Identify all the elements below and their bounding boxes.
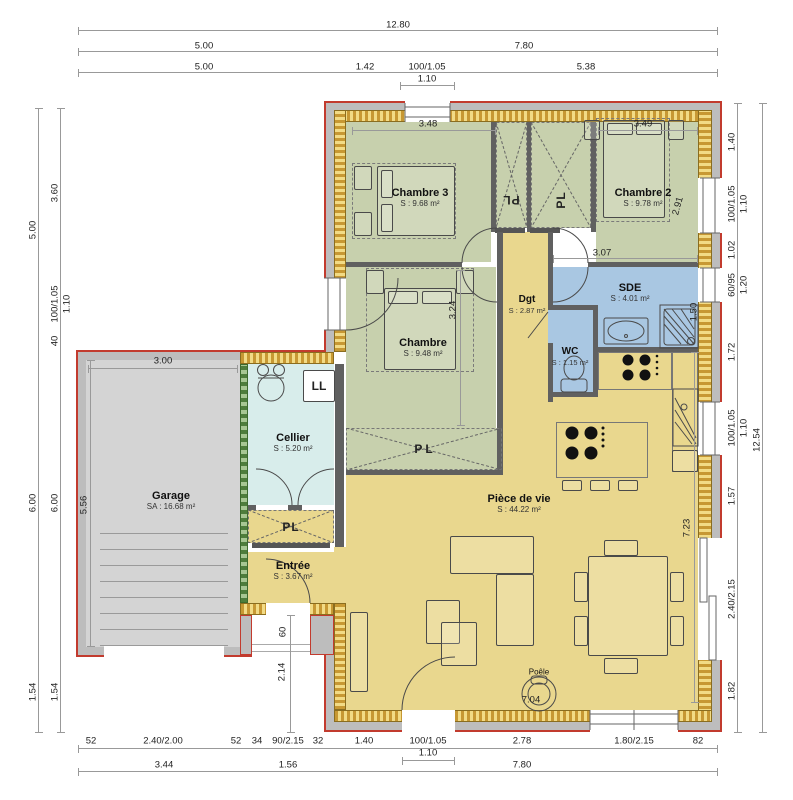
dimension-label: 34	[252, 736, 263, 747]
dimension-label: 6.00	[50, 494, 61, 513]
wall-dgt-east-upper	[548, 232, 553, 310]
garage-door-panels	[100, 533, 228, 647]
closet-pl-right-floor	[531, 122, 591, 228]
kitchen-counter-top	[598, 352, 672, 390]
chair	[604, 540, 638, 556]
dimension-label: 3.48	[419, 119, 438, 130]
dimension-label: 3.00	[154, 356, 173, 367]
nightstand	[456, 270, 474, 294]
dimension-label: 100/1.05	[409, 62, 446, 73]
dimension-label: 100/1.05	[50, 286, 61, 323]
dim-line	[694, 352, 695, 703]
insulation-wall-garage	[240, 364, 248, 603]
coffee-table-2	[441, 622, 477, 666]
wall-cellier-east	[335, 364, 344, 547]
wall-cellier-south-b	[288, 505, 302, 510]
wall-dgt-west	[497, 232, 503, 475]
stool	[590, 480, 610, 491]
dimension-label: 5.00	[195, 41, 214, 52]
chair	[574, 616, 588, 646]
bay-window-living	[698, 538, 730, 660]
dim-line	[352, 130, 496, 131]
dimension-label: 3.49	[634, 119, 653, 130]
dimension-label: 3.24	[448, 301, 459, 320]
label-poele: Poêle	[529, 668, 549, 677]
dimension-label: 1.50	[689, 303, 700, 322]
dim-line	[598, 130, 698, 131]
nightstand	[354, 212, 372, 236]
front-door-opening	[266, 603, 310, 615]
dimension-label: 3.07	[593, 248, 612, 259]
porch-pad-right	[310, 615, 334, 655]
dimension-label: 100/1.05	[727, 410, 738, 447]
label-pl-chambre: PL	[414, 442, 435, 456]
dimension-label: 3.60	[50, 184, 61, 203]
dim-line	[400, 85, 455, 86]
window-living-south	[590, 710, 678, 732]
dim-line	[90, 360, 91, 647]
dimension-label: 5.00	[28, 221, 39, 240]
dimension-label: 2.78	[513, 736, 532, 747]
label-ll: LL	[312, 379, 327, 393]
dimension-label: 5.00	[195, 62, 214, 73]
sofa-seat-top	[450, 536, 534, 574]
dining-table	[588, 556, 668, 656]
dimension-label: 32	[313, 736, 324, 747]
dimension-label: 52	[86, 736, 97, 747]
dimension-label: 52	[231, 736, 242, 747]
wall-pl-chambre-south	[346, 470, 502, 475]
dim-line	[290, 615, 291, 733]
wall-pl-divider	[527, 122, 531, 232]
dimension-label: 1.10	[418, 74, 437, 85]
dimension-label: 6.00	[28, 494, 39, 513]
window-chambre	[324, 278, 346, 330]
wall-chambre2-south	[588, 262, 698, 267]
dimension-label: 82	[693, 736, 704, 747]
wall-cellier-south-a	[248, 505, 256, 510]
dimension-label: 60/95	[727, 273, 738, 297]
window-kitchen	[698, 402, 730, 455]
window-sde	[698, 268, 730, 302]
dimension-label: 12.80	[386, 20, 410, 31]
entree-passage-floor	[334, 547, 346, 603]
chair	[574, 572, 588, 602]
sofa-seat-right	[496, 574, 534, 646]
pillow	[388, 291, 418, 304]
dimension-label: 2.14	[277, 663, 288, 682]
dimension-label: 2.40/2.15	[727, 579, 738, 619]
dimension-label: 100/1.05	[410, 736, 447, 747]
stool	[562, 480, 582, 491]
hall-dgt-floor	[503, 232, 548, 475]
dimension-label: 1.40	[727, 133, 738, 152]
pillow	[381, 204, 393, 232]
porch-pad-left	[240, 615, 252, 655]
dimension-label: 1.82	[727, 682, 738, 701]
label-pl-left: PL	[502, 193, 519, 207]
dimension-label: 1.57	[727, 487, 738, 506]
pl-entree-door	[252, 543, 330, 548]
porch-step	[252, 651, 310, 652]
dimension-label: 2.40/2.00	[143, 736, 183, 747]
dimension-label: 1.10	[739, 195, 750, 214]
dim-line	[88, 368, 238, 369]
nightstand	[366, 270, 384, 294]
chair	[670, 616, 684, 646]
wall-band-top	[326, 103, 720, 110]
closet-pl-left-floor	[496, 122, 527, 228]
dim-line	[762, 103, 763, 733]
dimension-label: 60	[278, 627, 289, 638]
nightstand	[354, 166, 372, 190]
pillow	[381, 170, 393, 198]
pl-right-door	[530, 228, 560, 233]
kitchen-island	[556, 422, 648, 478]
dimension-label: 100/1.05	[727, 186, 738, 223]
wall-wc-north	[548, 305, 598, 310]
pillow	[607, 123, 633, 135]
dim-line	[78, 72, 718, 73]
dimension-label: 1.40	[355, 736, 374, 747]
stool	[618, 480, 638, 491]
chair	[670, 572, 684, 602]
dim-line	[78, 771, 718, 772]
dim-line	[460, 270, 461, 426]
dimension-label: 1.56	[279, 760, 298, 771]
dimension-label: 7.80	[513, 760, 532, 771]
dimension-label: 1.10	[62, 295, 73, 314]
floor-plan: Chambre 3S : 9.68 m² Chambre 2S : 9.78 m…	[0, 0, 793, 800]
dim-line	[553, 258, 698, 259]
dimension-label: 5.56	[79, 496, 90, 515]
dimension-label: 1.02	[727, 241, 738, 260]
wall-pl-left	[491, 122, 496, 232]
wall-wc-south	[548, 392, 598, 397]
door-living-south	[402, 710, 455, 732]
wall-chambre3-south	[346, 262, 462, 267]
dimension-label: 1.10	[419, 748, 438, 759]
dimension-label: 7.80	[515, 41, 534, 52]
dimension-label: 1.42	[356, 62, 375, 73]
dimension-label: 5.38	[577, 62, 596, 73]
room-wc-floor	[548, 305, 598, 397]
dimension-label: 40	[50, 336, 61, 347]
tv-bench	[350, 612, 368, 692]
dimension-label: 3.44	[155, 760, 174, 771]
room-entree-floor	[248, 552, 334, 603]
dimension-label: 7.04	[522, 695, 541, 706]
dimension-label: 1.54	[50, 683, 61, 702]
dim-line	[38, 108, 39, 733]
chair	[604, 658, 638, 674]
window-chambre2	[698, 178, 730, 233]
dimension-label: 1.10	[739, 419, 750, 438]
dim-line	[78, 748, 718, 749]
outline-top	[324, 101, 722, 103]
dimension-label: 1.54	[28, 683, 39, 702]
dimension-label: 1.80/2.15	[614, 736, 654, 747]
dimension-label: 1.20	[739, 276, 750, 295]
label-pl-entree: PL	[282, 520, 299, 534]
dim-line	[402, 760, 455, 761]
ext-wall-left-lower	[334, 603, 346, 710]
ext-wall-cellier-top	[240, 352, 334, 364]
porch-step	[252, 644, 310, 645]
dimension-label: 90/2.15	[272, 736, 304, 747]
dimension-label: 12.54	[752, 428, 763, 452]
dim-line	[78, 51, 718, 52]
label-pl-right: PL	[554, 191, 568, 208]
dimension-label: 1.72	[727, 343, 738, 362]
dimension-label: 7.23	[682, 519, 693, 538]
